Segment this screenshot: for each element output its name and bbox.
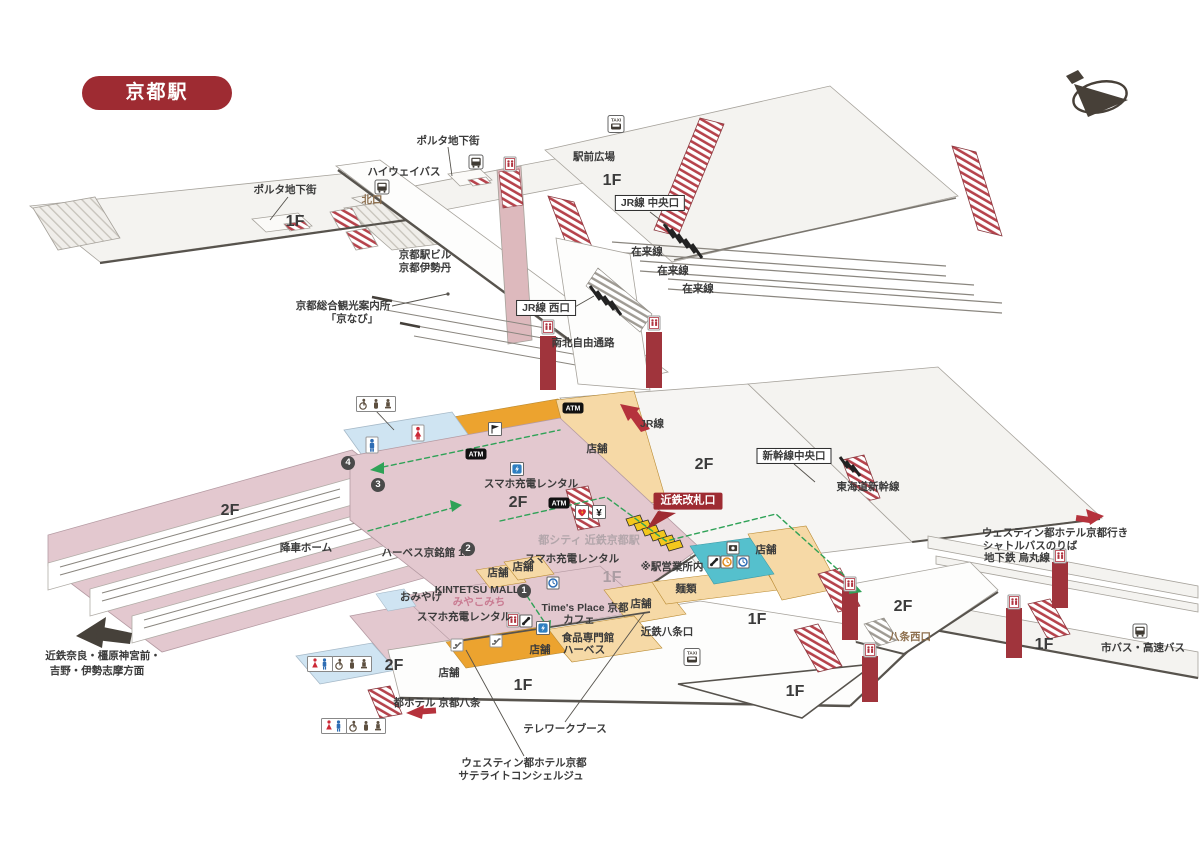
elevator-icon-hachijo-a — [844, 577, 857, 592]
eki-eigyosho: ※駅営業所内 — [641, 561, 704, 573]
kyoto-station-bldg-line2: 京都伊勢丹 — [399, 262, 452, 274]
meeting-flag-icon — [488, 422, 502, 436]
atm-icon-c — [549, 498, 570, 509]
jr-line: JR線 — [640, 418, 664, 430]
atm-icon-b — [466, 449, 487, 460]
menrui: 麺類 — [676, 583, 697, 595]
north-1f-area — [30, 86, 958, 263]
floor-1f-hachijo: 1F — [748, 611, 767, 629]
westin-shuttle-line1: ウェスティン都ホテル京都行き — [982, 527, 1128, 539]
shinkansen-central-exit: 新幹線中央口 — [757, 448, 832, 464]
ekimae-hiroba: 駅前広場 — [573, 151, 615, 163]
currency-exchange-icon — [592, 505, 606, 519]
accessible-restroom-icon-top — [356, 396, 396, 412]
kosha-home: 降車ホーム — [280, 542, 332, 554]
restroom-female-icon — [412, 425, 425, 442]
westin-satellite-line1: ウェスティン都ホテル京都 — [461, 757, 586, 769]
phone-icon-office — [708, 556, 721, 569]
kintetsu-gate-badge: 近鉄改札口 — [654, 493, 723, 510]
elevator-icon-passage-w — [542, 320, 555, 335]
harves-kyomeikan: ハーベス京銘館 1F — [382, 547, 471, 559]
kyonavi-line2: 「京なび」 — [326, 313, 379, 325]
clock-icon-office-orange — [721, 556, 734, 569]
westin-satellite-line2: サテライトコンシェルジュ — [458, 770, 583, 782]
floor-1f-south: 1F — [514, 677, 533, 695]
sumaho-rental-1f-a: スマホ充電レンタル — [525, 553, 619, 565]
floor-2f-west-end: 2F — [385, 657, 404, 675]
elevator-icon-passage-e — [648, 316, 661, 331]
cafe: カフェ — [563, 614, 595, 626]
restroom-male-icon — [366, 437, 379, 454]
kintetsu-nara-line2: 吉野・伊勢志摩方面 — [50, 665, 145, 677]
tenpo-2f: 店舗 — [587, 443, 608, 455]
restroom-mf-icon-west — [307, 656, 333, 672]
charge-rental-icon-1f — [536, 621, 550, 635]
times-place-kyoto: Time's Place 京都 — [542, 602, 629, 614]
miyako-city-kintetsu: 都シティ 近鉄京都駅 — [538, 535, 639, 548]
zairaisen-1: 在来線 — [631, 246, 663, 258]
tenpo-e: 店舗 — [439, 667, 460, 679]
tenpo-a: 店舗 — [488, 567, 509, 579]
taxi-icon-north — [608, 115, 625, 133]
accessible-restroom-icon-south — [346, 718, 386, 734]
floor-1f-triangle: 1F — [786, 683, 805, 701]
tokaido-shinkansen: 東海道新幹線 — [837, 481, 900, 493]
station-map-graphics: TAXI ATM — [0, 0, 1200, 848]
kitaguchi: 北口 — [362, 194, 383, 206]
page-title: 京都駅 — [82, 76, 232, 110]
sumaho-rental-2f: スマホ充電レンタル — [484, 478, 578, 490]
photo-icon-office — [727, 542, 740, 555]
jr-central-exit: JR線 中央口 — [615, 195, 685, 211]
food-harves-line1: 食品専門館 — [562, 632, 615, 644]
floor-2f-jr: 2F — [695, 456, 714, 474]
floor-2f-kintetsu: 2F — [509, 494, 528, 512]
kintetsu-nara-line1: 近鉄奈良・橿原神宮前・ — [45, 650, 161, 662]
miyakomichi: みやこみち — [453, 596, 506, 608]
zairaisen-3: 在来線 — [682, 283, 714, 295]
escalator-icon-mall-a — [451, 639, 464, 652]
zairaisen-2: 在来線 — [657, 265, 689, 277]
tenpo-c: 店舗 — [631, 598, 652, 610]
highway-bus: ハイウェイバス — [367, 166, 440, 178]
compass-icon — [1066, 70, 1130, 117]
station-name: 京都駅 — [125, 82, 188, 103]
bus-icon-north — [469, 155, 484, 170]
porta-chikagai-top: ポルタ地下街 — [417, 135, 480, 147]
marker-1: 1 — [517, 584, 531, 598]
floor-1f-east: 1F — [1035, 636, 1054, 654]
food-harves-line2: ハーベス — [563, 644, 605, 656]
kintetsu-hachijo-exit: 近鉄八条口 — [641, 626, 694, 638]
jr-west-exit: JR線 西口 — [516, 300, 576, 316]
elevator-icon-hachijo-b — [864, 643, 877, 658]
floor-2f-platform: 2F — [221, 502, 240, 520]
marker-2: 2 — [461, 542, 475, 556]
kyonavi-line1: 京都総合観光案内所 — [296, 300, 391, 312]
accessible-restroom-icon-west — [332, 656, 372, 672]
restroom-mf-icon-south — [321, 718, 347, 734]
sumaho-rental-1f-b: スマホ充電レンタル — [417, 611, 511, 623]
free-passage: 南北自由通路 — [552, 337, 615, 349]
elevator-icon-bridge — [504, 157, 517, 172]
taxi-icon-south — [684, 648, 701, 666]
tenpo-d: 店舗 — [530, 644, 551, 656]
charge-rental-icon-2f — [510, 462, 524, 476]
kyoto-station-bldg-line1: 京都駅ビル — [399, 249, 452, 261]
porta-chikagai-left: ポルタ地下街 — [254, 184, 317, 196]
floor-2f-hachijo-west: 2F — [894, 598, 913, 616]
floor-1f-pink: 1F — [603, 569, 622, 587]
floor-1f-west: 1F — [286, 213, 305, 231]
tenpo-b: 店舗 — [513, 561, 534, 573]
bus-icon-highway — [375, 180, 390, 195]
westin-shuttle-line3: 地下鉄 烏丸線 — [984, 552, 1050, 564]
escalator-icon-mall-b — [490, 635, 503, 648]
atm-icon-a — [563, 403, 584, 414]
aed-heart-icon — [575, 505, 589, 519]
phone-icon-mall — [520, 615, 533, 628]
miyako-hotel-hachijo: 都ホテル 京都八条 — [394, 697, 481, 709]
clock-icon-office-blue — [737, 556, 750, 569]
hachijo-west-exit: 八条西口 — [889, 631, 931, 643]
city-bus: 市バス・高速バス — [1101, 642, 1185, 654]
tenpo-right: 店舗 — [756, 544, 777, 556]
kintetsu-mall: KINTETSU MALL — [435, 584, 520, 596]
elevator-icon-east-a — [1008, 595, 1021, 610]
bus-icon-city — [1133, 624, 1148, 639]
kyoto-station-map: TAXI ATM — [0, 0, 1200, 848]
marker-4: 4 — [341, 456, 355, 470]
telework-booth: テレワークブース — [523, 723, 606, 735]
marker-3: 3 — [371, 478, 385, 492]
floor-1f-plaza: 1F — [603, 172, 622, 190]
clock-icon-mall — [547, 577, 560, 590]
westin-shuttle-line2: シャトルバスのりば — [983, 540, 1078, 552]
